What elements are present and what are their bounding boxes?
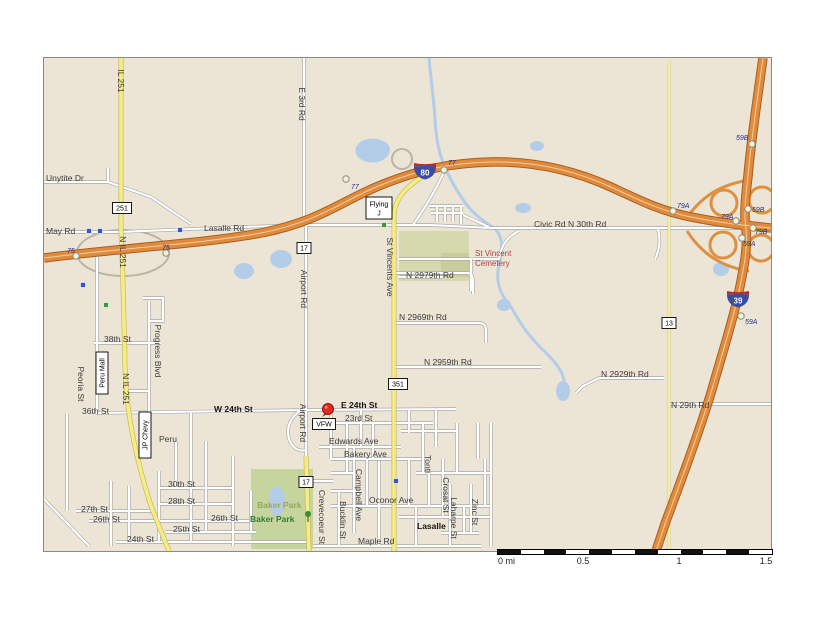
street-label: N 2959th Rd	[424, 357, 472, 367]
street-label: W 24th St	[214, 404, 253, 414]
street-label: 25th St	[173, 524, 201, 534]
street-label: Tonti	[423, 455, 433, 473]
street-label: N 2969th Rd	[399, 312, 447, 322]
map-label-box-text: VFW	[316, 422, 332, 429]
exit-number-label: 59A	[745, 319, 758, 326]
exit-number-label: 77	[448, 160, 457, 167]
map-label-box: 17	[299, 477, 313, 488]
street-label: 23rd St	[345, 413, 373, 423]
street-label: Baker Park	[250, 514, 295, 524]
poi-blue-icon	[178, 228, 183, 233]
street-label: Progress Blvd	[153, 325, 163, 378]
street-label: Airport Rd	[299, 270, 309, 309]
street-label: Bakery Ave	[344, 449, 387, 459]
pond	[234, 263, 254, 279]
scale-bar-segment	[681, 550, 704, 554]
street-label: Civic Rd N 30th Rd	[534, 219, 607, 229]
pond	[497, 299, 511, 311]
scale-bar-segment	[703, 550, 726, 554]
street-label: Crevecoeur St	[317, 490, 327, 545]
poi-blue-icon	[394, 479, 399, 484]
scale-bar-label: 1.5	[760, 556, 773, 566]
street-label: St Vincent	[475, 249, 512, 258]
scale-bar-label: 1	[676, 556, 681, 566]
scale-bar-segment	[544, 550, 567, 554]
street-label: N 29th Rd	[671, 400, 710, 410]
street-label: Baker Park	[257, 500, 302, 510]
map-label-box-text: 13	[665, 321, 673, 328]
scale-bar-segment	[726, 550, 749, 554]
exit-number-label: 59A	[743, 241, 756, 248]
exit-number-label: 79A	[721, 214, 734, 221]
scale-bar-segment	[749, 550, 772, 554]
map-label-box-text: Peru Mall	[100, 358, 107, 388]
scale-bar-segment	[658, 550, 681, 554]
scale-bar: 0 mi0.511.5	[497, 549, 771, 555]
street-label: 26th St	[93, 514, 121, 524]
scale-bar-segment	[521, 550, 544, 554]
street-label: E 3rd Rd	[297, 87, 307, 121]
map-label-box-text: 17	[300, 246, 308, 253]
exit-number-label: 75	[67, 248, 75, 255]
exit-dot	[738, 313, 744, 319]
street-label: N IL 251	[121, 373, 131, 405]
street-label: St Vincents Ave	[385, 237, 395, 296]
map-label-box: FlyingJ	[366, 197, 392, 219]
pond	[530, 141, 544, 151]
street-label: Peoria St	[76, 367, 86, 403]
street-label: Airport Rd	[298, 404, 308, 443]
street-label: Laharpe St	[449, 497, 459, 539]
map-label-box-text: 17	[302, 480, 310, 487]
street-label: IL 251	[116, 69, 126, 93]
map-label-box: 13	[662, 318, 676, 329]
pond	[270, 250, 292, 268]
street-label: Bucklin St	[338, 501, 348, 539]
exit-number-label: 79A	[677, 203, 690, 210]
street-label: E 24th St	[341, 400, 378, 410]
scale-bar-segment	[566, 550, 589, 554]
map-label-box: JP Chevy	[139, 412, 151, 458]
street-label: Maple Rd	[358, 536, 395, 546]
street-label: N IL 251	[118, 236, 128, 268]
street-label: Cemetery	[475, 259, 510, 268]
scale-bar-label: 0.5	[577, 556, 590, 566]
street-label: Campbell Ave	[354, 469, 364, 522]
street-label: May Rd	[46, 226, 76, 236]
street-label: Peru	[159, 434, 177, 444]
exit-number-label: 75	[162, 245, 170, 252]
poi-green-icon	[382, 223, 387, 228]
map-label-box-text: JP Chevy	[143, 420, 150, 450]
scale-bar-segment	[612, 550, 635, 554]
street-label: 28th St	[168, 496, 196, 506]
pond	[556, 381, 570, 401]
map-label-box: VFW	[313, 419, 336, 430]
exit-number-label: 79B	[755, 229, 768, 236]
street-label: 38th St	[104, 334, 132, 344]
map-label-box: 251	[113, 203, 132, 214]
page: { "map": { "colors": { "background": "#e…	[0, 0, 814, 629]
scale-bar-label: 0 mi	[498, 556, 515, 566]
street-label: Edwards Ave	[329, 436, 379, 446]
exit-dot	[343, 176, 349, 182]
scale-bar-track	[497, 549, 773, 555]
street-label: 24th St	[127, 534, 155, 544]
map-label-box-text: 351	[392, 382, 404, 389]
poi-blue-icon	[81, 283, 86, 288]
exit-number-label: 59B	[752, 207, 765, 214]
exit-dot	[745, 206, 751, 212]
street-label: Lasalle	[417, 521, 446, 531]
shield-number: 80	[421, 169, 430, 178]
exit-dot	[441, 167, 447, 173]
street-label: 26th St	[211, 513, 239, 523]
map-label-box: Peru Mall	[96, 352, 108, 394]
poi-blue-icon	[98, 229, 103, 234]
map-label-box: 17	[297, 243, 311, 254]
exit-dot	[670, 208, 676, 214]
map-label-box: 351	[389, 379, 408, 390]
scale-bar-segment	[589, 550, 612, 554]
map-canvas[interactable]: Unytite DrMay RdLasalle RdCivic Rd N 30t…	[43, 57, 772, 552]
street-label: Oconor Ave	[369, 495, 414, 505]
exit-dot	[733, 218, 739, 224]
street-label: N 2929th Rd	[601, 369, 649, 379]
scale-bar-segment	[635, 550, 658, 554]
map-label-box-text: 251	[116, 206, 128, 213]
street-label: 30th St	[168, 479, 196, 489]
street-label: Unytite Dr	[46, 173, 84, 183]
exit-number-label: 59B	[736, 135, 749, 142]
poi-green-icon	[104, 303, 109, 308]
street-label: Zinc St	[470, 499, 480, 526]
scale-bar-segment	[498, 550, 521, 554]
shield-number: 39	[734, 297, 743, 306]
street-label: Lasalle Rd	[204, 223, 244, 233]
street-label: 27th St	[81, 504, 109, 514]
street-label: N 2979th Rd	[406, 270, 454, 280]
pond	[515, 203, 531, 213]
street-label: 36th St	[82, 406, 110, 416]
poi-blue-icon	[87, 229, 92, 234]
exit-dot	[749, 141, 755, 147]
exit-number-label: 77	[351, 184, 360, 191]
